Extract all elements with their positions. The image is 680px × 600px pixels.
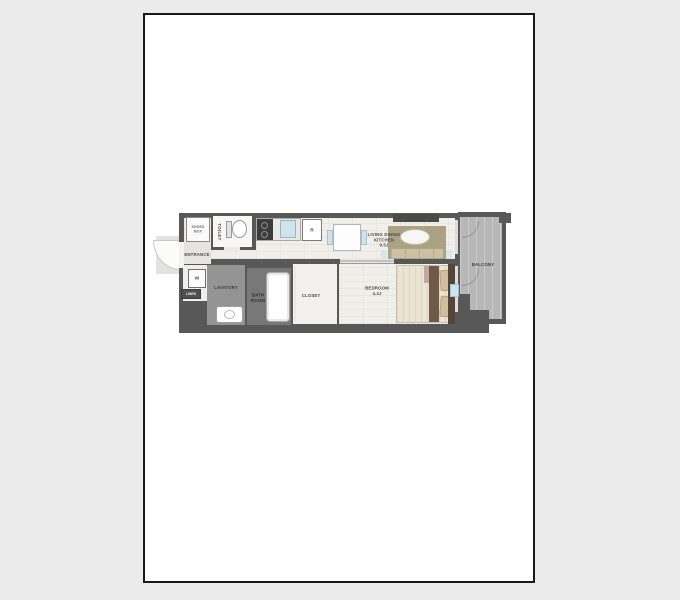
label-bath-room: BATH ROOM: [251, 293, 265, 304]
bathtub: [266, 272, 290, 322]
dining-table: [333, 224, 361, 251]
tv-board: [393, 214, 439, 222]
label-shoes-box: SHOES BOX: [191, 225, 204, 234]
balcony-corner-pillar: [499, 213, 511, 223]
balcony-window-ldk: [455, 220, 458, 254]
floor-cushion-right: [446, 250, 452, 259]
sofa: [390, 248, 444, 259]
hallway: [211, 250, 256, 259]
label-bedroom: BEDROOM 4.4J: [365, 286, 389, 297]
bottom-pillar-wing: [470, 310, 489, 333]
label-washer: W: [195, 275, 200, 281]
toilet-bowl-icon: [232, 220, 247, 238]
stove-burner2-icon: [261, 231, 268, 238]
floorplan: SHOES BOX TOILET ENTRANCE W LINEN LAVATO…: [150, 208, 514, 340]
listing-image-card: SHOES BOX TOILET ENTRANCE W LINEN LAVATO…: [143, 13, 535, 583]
entrance-door-gap: [179, 242, 184, 268]
coffee-table: [400, 229, 430, 245]
label-toilet: TOILET: [216, 223, 221, 240]
kitchen-sink: [280, 220, 296, 238]
label-entrance: ENTRANCE: [184, 252, 209, 257]
bed-brown-band: [429, 266, 439, 322]
label-linen: LINEN: [186, 292, 196, 296]
label-balcony: BALCONY: [472, 262, 495, 267]
night-stand: [450, 284, 459, 297]
sliding-door-tracks: [340, 259, 394, 264]
vanity-bowl-icon: [224, 310, 235, 319]
label-living-dining-kitchen: LIVING DINING KITCHEN 9.5J: [368, 232, 401, 248]
page-background: { "window": { "background": "#ebebeb" },…: [0, 0, 680, 600]
label-closet: CLOSET: [302, 293, 321, 298]
stove-burner-icon: [261, 222, 268, 229]
closet-door-line: [294, 266, 296, 322]
label-refrigerator: R: [310, 227, 314, 233]
floor-cushion-left: [381, 250, 387, 259]
label-lavatory: LAVATORY: [214, 285, 238, 290]
dining-chair-right: [361, 230, 367, 245]
